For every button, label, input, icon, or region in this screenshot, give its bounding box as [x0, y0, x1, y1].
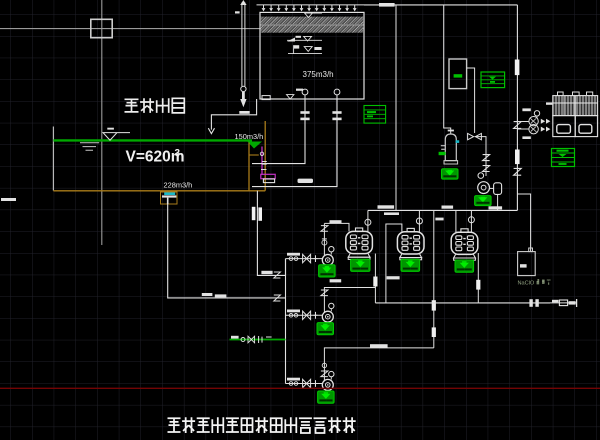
svg-text:375m3/h: 375m3/h [303, 70, 334, 79]
svg-text:NaClO: NaClO [518, 281, 535, 287]
svg-text:150m3/h: 150m3/h [235, 132, 264, 141]
svg-text:3: 3 [175, 148, 181, 159]
svg-text:228m3/h: 228m3/h [164, 181, 193, 190]
